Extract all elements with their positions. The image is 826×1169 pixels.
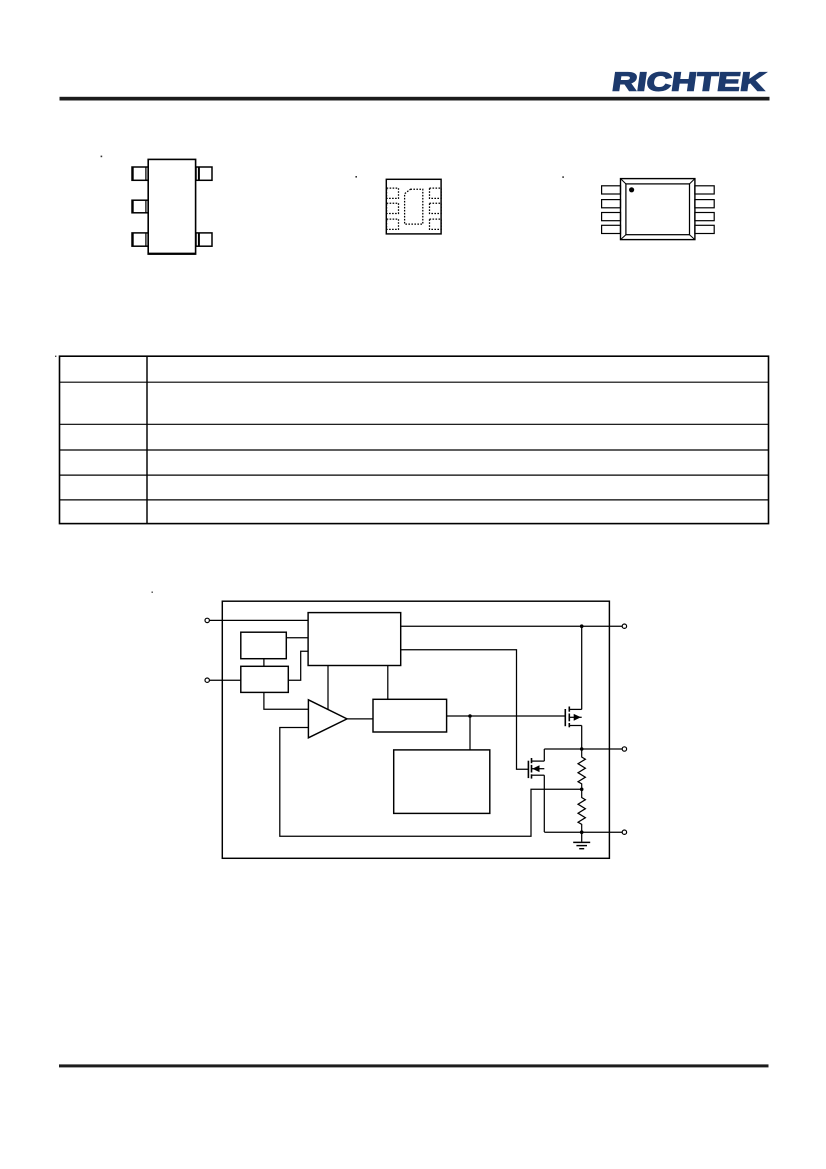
- svg-text:RICHTEK: RICHTEK: [610, 66, 767, 96]
